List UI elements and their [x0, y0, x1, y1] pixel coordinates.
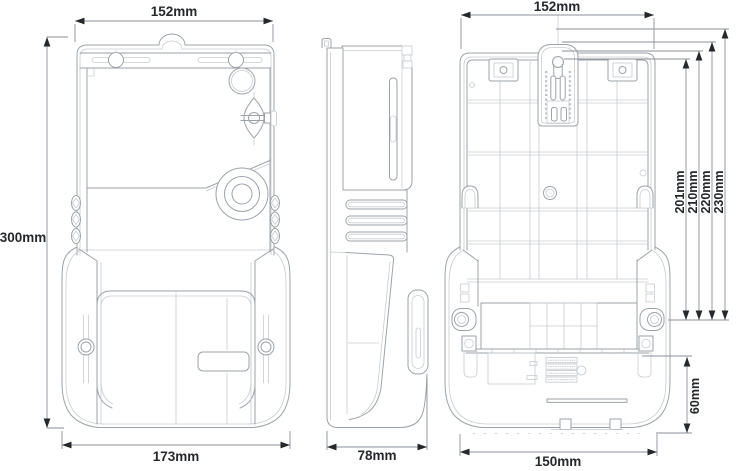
- front-width-top-label: 152mm: [151, 4, 198, 19]
- back-bottom-tab-right: [610, 419, 621, 430]
- side-depth-label: 78mm: [357, 448, 396, 463]
- front-height-label: 300mm: [0, 230, 46, 245]
- back-center-hole: [544, 187, 557, 200]
- front-optical-port: [216, 168, 268, 220]
- back-mount-height-210-label: 210mm: [686, 170, 700, 213]
- front-screw-left: [109, 53, 124, 68]
- front-label-window: [198, 352, 249, 371]
- meter-technical-drawing-page: 152mm 300mm 173mm: [0, 0, 750, 471]
- meter-technical-drawing: 152mm 300mm 173mm: [0, 0, 750, 471]
- side-front-window: [390, 78, 398, 180]
- back-bottom-tab-left: [560, 419, 571, 430]
- back-width-top-label: 152mm: [534, 0, 581, 14]
- front-width-bottom-label: 173mm: [153, 449, 200, 464]
- back-mount-height-220-label: 220mm: [699, 170, 713, 213]
- back-mount-height-230-label: 230mm: [712, 170, 726, 213]
- side-hanging-eye: [322, 39, 331, 49]
- side-vent-louvers: [346, 200, 407, 241]
- front-edge-tab: [271, 111, 277, 126]
- back-bottom-groove: [547, 399, 627, 402]
- back-mount-height-201-label: 201mm: [673, 170, 687, 213]
- side-seal-boss: [408, 290, 428, 374]
- back-terminal-offset-label: 60mm: [688, 378, 702, 414]
- front-screw-right: [229, 53, 244, 68]
- back-width-bottom-label: 150mm: [535, 454, 582, 469]
